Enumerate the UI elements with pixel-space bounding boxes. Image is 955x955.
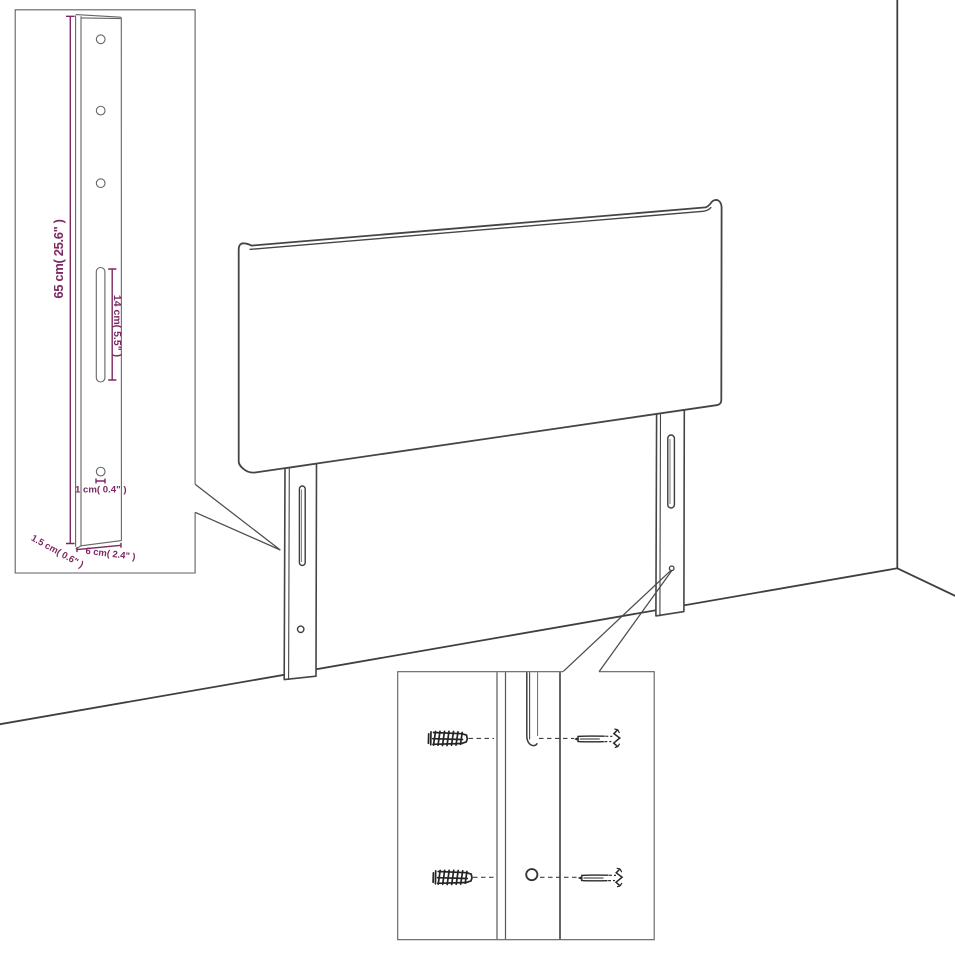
svg-text:1 cm( 0.4" ): 1 cm( 0.4" )	[75, 485, 126, 496]
svg-text:14 cm( 5.5" ): 14 cm( 5.5" )	[111, 295, 123, 357]
svg-text:65 cm( 25.6" ): 65 cm( 25.6" )	[51, 219, 66, 298]
